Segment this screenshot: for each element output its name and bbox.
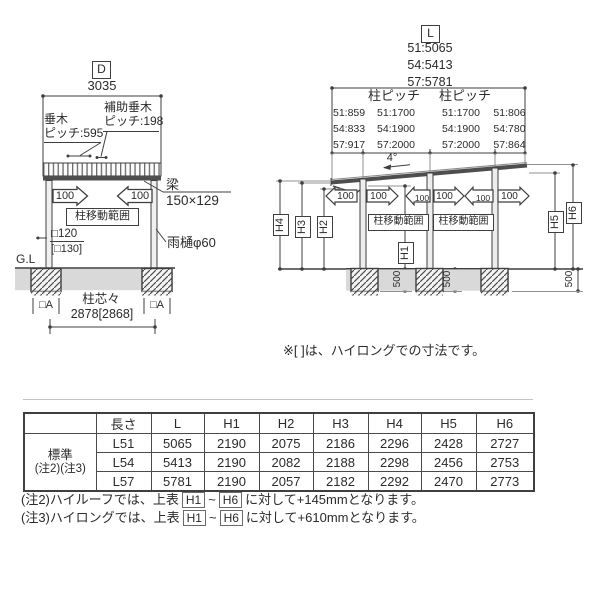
post-span-value: 2878[2868] xyxy=(71,308,134,322)
cell-length: L54 xyxy=(96,453,151,472)
h3-label: H3 xyxy=(295,216,311,238)
roof-slope-value: 4° xyxy=(387,152,398,164)
cell-length: L51 xyxy=(96,434,151,453)
table-corner-cell xyxy=(24,413,96,434)
dimension-spec-table: 長さ L H1 H2 H3 H4 H5 H6 標準 (注2)(注3) L51 5… xyxy=(23,412,535,492)
col-header-H4: H4 xyxy=(368,413,421,434)
front-roof-panel xyxy=(43,163,161,176)
front-arrow-value-left: 100 xyxy=(56,189,74,203)
side-pillar-range-label-1: 柱移動範囲 xyxy=(368,214,429,231)
cell-value: 2773 xyxy=(476,472,534,492)
pitch-value: 57:917 xyxy=(333,137,364,153)
footnote-2-h6-box: H6 xyxy=(219,492,242,508)
anchor-symbol-right: □A xyxy=(150,299,164,311)
length-value-51: 51:5065 xyxy=(407,42,452,56)
side-arrow-value-4: 100 xyxy=(436,190,453,204)
bracket-dimension-note: ※[ ]は、ハイロングでの寸法です。 xyxy=(283,344,485,358)
length-value-54: 54:5413 xyxy=(407,59,452,73)
pitch-header-1: 柱ピッチ xyxy=(368,89,420,103)
side-pillar-range-label-2: 柱移動範囲 xyxy=(433,214,494,231)
pitch-value: 57:2000 xyxy=(428,137,493,153)
cell-value: 2470 xyxy=(421,472,476,492)
table-header-row: 長さ L H1 H2 H3 H4 H5 H6 xyxy=(24,413,534,434)
pitch-value: 51:859 xyxy=(333,105,364,121)
footnote-3-post: に対して+610mmとなります。 xyxy=(246,510,425,525)
pitch-value: 57:864 xyxy=(493,137,524,153)
col-header-H3: H3 xyxy=(313,413,368,434)
ground-level-label: G.L xyxy=(16,253,35,266)
cell-value: 2298 xyxy=(368,453,421,472)
footnote-2-tilde: ~ xyxy=(208,492,216,507)
cell-value: 5065 xyxy=(151,434,204,453)
foundation-depth-1: 500 xyxy=(392,266,404,292)
pitch-value-grid: 51:859 51:1700 51:1700 51:806 54:833 54:… xyxy=(333,105,524,153)
post-span-label: 柱芯々 xyxy=(82,293,120,307)
col-header-H6: H6 xyxy=(476,413,534,434)
rafter-pitch-label-line1: 垂木 xyxy=(44,113,68,126)
cell-value: 2082 xyxy=(259,453,313,472)
front-width-value: 3035 xyxy=(88,79,117,93)
h1-label: H1 xyxy=(398,242,414,264)
footnote-3-h1-box: H1 xyxy=(183,510,206,526)
side-arrow-value-6: 100 xyxy=(501,190,518,204)
aux-rafter-pitch-label-line1: 補助垂木 xyxy=(104,101,152,114)
cell-value: 5413 xyxy=(151,453,204,472)
footnote-3-h6-box: H6 xyxy=(220,510,243,526)
pitch-value: 51:1700 xyxy=(428,105,493,121)
post-size-alt-label: [□130] xyxy=(51,243,82,255)
h5-label: H5 xyxy=(548,211,564,233)
col-header-L: L xyxy=(151,413,204,434)
pitch-value: 51:1700 xyxy=(364,105,429,121)
front-foundation-right xyxy=(142,269,172,292)
row-group-label: 標準 (注2)(注3) xyxy=(24,434,96,492)
pitch-value: 54:1900 xyxy=(428,121,493,137)
footnote-2-post: に対して+145mmとなります。 xyxy=(245,492,424,507)
footnote-2-h1-box: H1 xyxy=(182,492,205,508)
pitch-row-54: 54:833 54:1900 54:1900 54:780 xyxy=(333,121,524,137)
table-row: 標準 (注2)(注3) L51 5065 2190 2075 2186 2296… xyxy=(24,434,534,453)
cell-value: 2727 xyxy=(476,434,534,453)
side-foundation-1 xyxy=(351,269,378,292)
cell-value: 2456 xyxy=(421,453,476,472)
footnote-2-pre: (注2)ハイルーフでは、上表 xyxy=(21,492,179,507)
col-header-length: 長さ xyxy=(96,413,151,434)
cell-value: 2075 xyxy=(259,434,313,453)
front-beam xyxy=(43,176,161,181)
post-size-label: □120 xyxy=(51,228,77,241)
cell-value: 2753 xyxy=(476,453,534,472)
pitch-value: 54:833 xyxy=(333,121,364,137)
side-arrow-value-5: 100 xyxy=(476,191,490,205)
side-arrow-value-2: 100 xyxy=(370,190,387,204)
pitch-row-51: 51:859 51:1700 51:1700 51:806 xyxy=(333,105,524,121)
front-width-symbol: D xyxy=(92,61,111,79)
front-arrow-value-right: 100 xyxy=(131,189,149,203)
footnote-3: (注3)ハイロングでは、上表H1~H6に対して+610mmとなります。 xyxy=(21,507,425,526)
table-row: L54 5413 2190 2082 2188 2298 2456 2753 xyxy=(24,453,534,472)
cell-value: 2188 xyxy=(313,453,368,472)
side-foundation-3 xyxy=(481,269,508,292)
h2-label: H2 xyxy=(317,216,333,238)
beam-size-value: 150×129 xyxy=(166,194,219,209)
col-header-H2: H2 xyxy=(259,413,313,434)
gutter-label: 雨樋φ60 xyxy=(167,236,216,250)
pitch-value: 57:2000 xyxy=(364,137,429,153)
rafter-pitch-label-line2: ピッチ:595 xyxy=(44,127,103,140)
aux-rafter-pitch-label-line2: ピッチ:198 xyxy=(104,115,163,128)
cell-value: 2190 xyxy=(204,434,259,453)
row-group-line2: (注2)(注3) xyxy=(25,463,96,476)
cell-value: 2186 xyxy=(313,434,368,453)
carport-dimension-drawing: D 3035 垂木 ピッチ:595 補助垂木 ピッチ:198 100 100 柱… xyxy=(0,0,600,600)
beam-label: 梁 xyxy=(166,178,179,192)
h6-label: H6 xyxy=(566,202,582,224)
cell-value: 2296 xyxy=(368,434,421,453)
front-pillar-range-label: 柱移動範囲 xyxy=(66,208,139,226)
row-group-line1: 標準 xyxy=(25,448,96,462)
footnote-2: (注2)ハイルーフでは、上表H1~H6に対して+145mmとなります。 xyxy=(21,489,424,508)
h4-label: H4 xyxy=(273,214,289,236)
side-arrow-value-3: 100 xyxy=(415,191,429,205)
cell-value: 2190 xyxy=(204,453,259,472)
pitch-value: 51:806 xyxy=(493,105,524,121)
cell-value: 2428 xyxy=(421,434,476,453)
anchor-symbol-left: □A xyxy=(39,299,53,311)
pitch-header-2: 柱ピッチ xyxy=(439,89,491,103)
pitch-value: 54:780 xyxy=(493,121,524,137)
foundation-depth-2: 500 xyxy=(442,266,454,292)
side-foundation-2 xyxy=(416,269,443,292)
col-header-H1: H1 xyxy=(204,413,259,434)
col-header-H5: H5 xyxy=(421,413,476,434)
footnote-3-tilde: ~ xyxy=(209,510,217,525)
front-foundation-left xyxy=(31,269,61,292)
foundation-depth-3: 500 xyxy=(564,266,576,292)
footnote-3-pre: (注3)ハイロングでは、上表 xyxy=(21,510,180,525)
pitch-value: 54:1900 xyxy=(364,121,429,137)
pitch-row-57: 57:917 57:2000 57:2000 57:864 xyxy=(333,137,524,153)
side-arrow-value-1: 100 xyxy=(337,190,354,204)
